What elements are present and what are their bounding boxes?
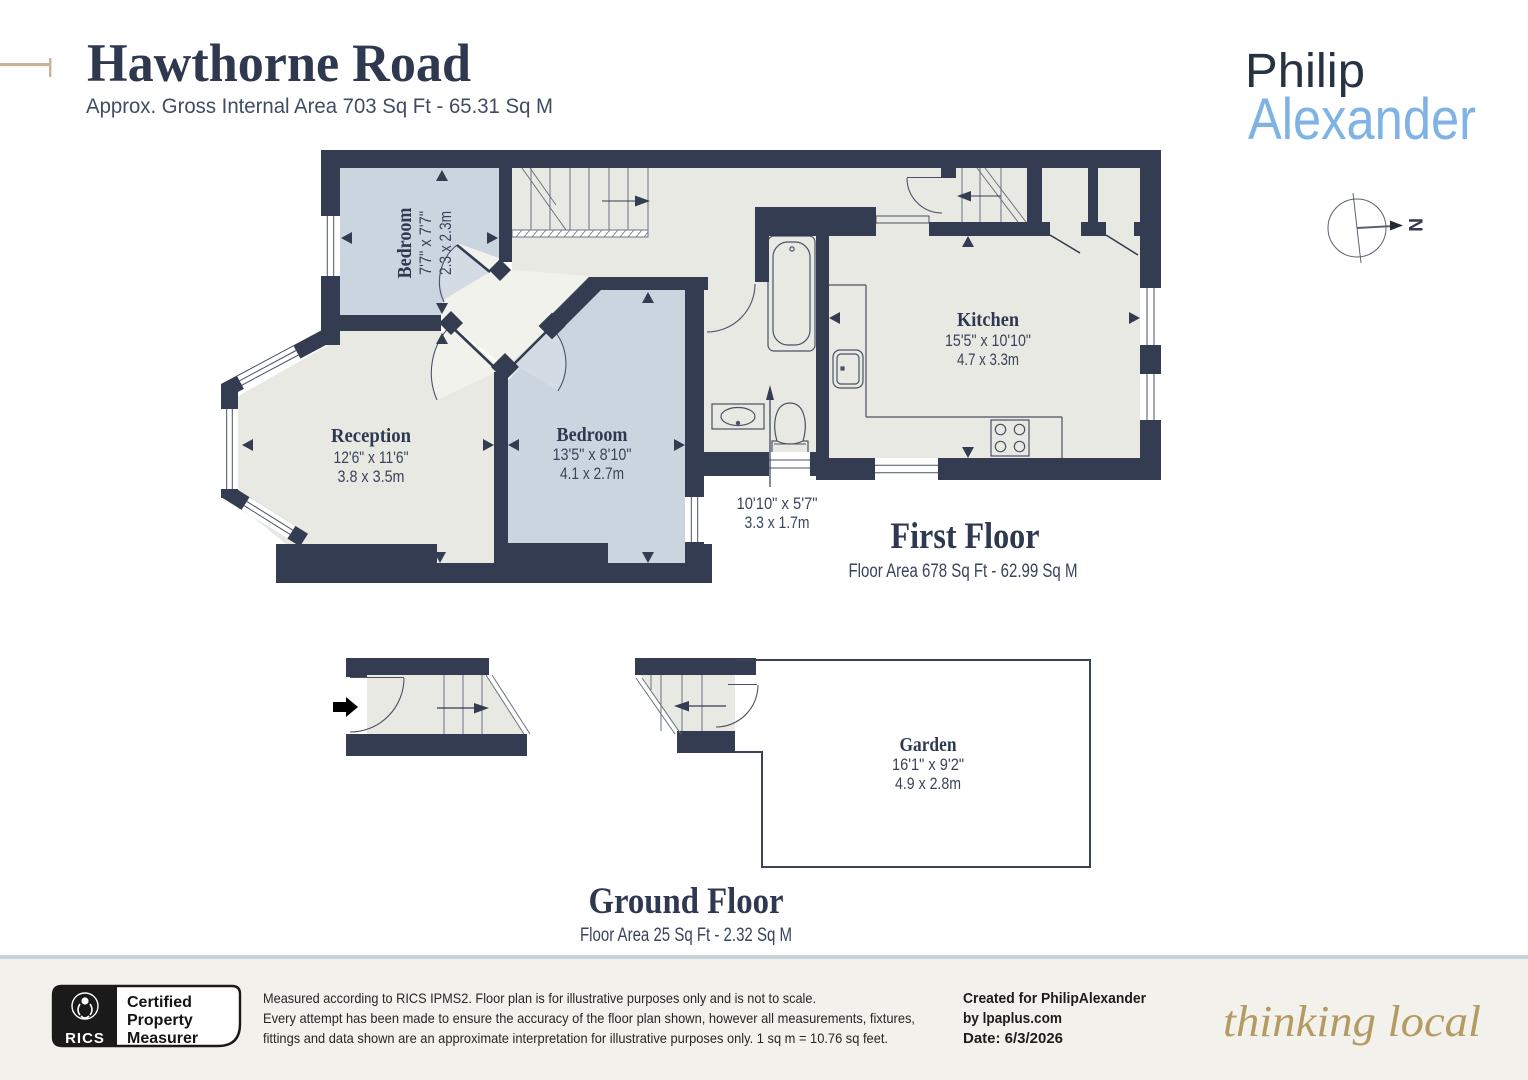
svg-text:4.7 x 3.3m: 4.7 x 3.3m bbox=[957, 350, 1019, 369]
svg-text:RICS: RICS bbox=[65, 1030, 105, 1047]
svg-text:Bedroom: Bedroom bbox=[394, 207, 416, 278]
svg-text:First Floor: First Floor bbox=[891, 516, 1040, 557]
svg-text:Measurer: Measurer bbox=[127, 1030, 198, 1047]
svg-text:3.8 x 3.5m: 3.8 x 3.5m bbox=[338, 467, 405, 486]
svg-text:4.1 x 2.7m: 4.1 x 2.7m bbox=[560, 464, 624, 483]
svg-text:Created for PhilipAlexander: Created for PhilipAlexander bbox=[963, 991, 1146, 1007]
svg-text:4.9 x 2.8m: 4.9 x 2.8m bbox=[895, 774, 961, 793]
svg-text:7'7" x 7'7": 7'7" x 7'7" bbox=[416, 211, 435, 275]
svg-text:N: N bbox=[1404, 218, 1425, 232]
svg-text:15'5" x 10'10": 15'5" x 10'10" bbox=[945, 331, 1031, 350]
svg-text:Floor Area 25 Sq Ft - 2.32 Sq: Floor Area 25 Sq Ft - 2.32 Sq M bbox=[580, 925, 792, 946]
svg-text:10'10" x 5'7": 10'10" x 5'7" bbox=[737, 494, 818, 513]
svg-text:Hawthorne Road: Hawthorne Road bbox=[87, 33, 471, 93]
svg-text:Property: Property bbox=[127, 1012, 193, 1029]
svg-text:Measured according to RICS IPM: Measured according to RICS IPMS2. Floor … bbox=[263, 991, 816, 1006]
svg-text:by lpaplus.com: by lpaplus.com bbox=[963, 1011, 1062, 1027]
svg-text:Bedroom: Bedroom bbox=[557, 424, 628, 446]
svg-text:Approx. Gross Internal Area 70: Approx. Gross Internal Area 703 Sq Ft - … bbox=[86, 95, 553, 118]
svg-text:Certified: Certified bbox=[127, 994, 192, 1011]
svg-text:Kitchen: Kitchen bbox=[957, 309, 1019, 331]
svg-text:Alexander: Alexander bbox=[1248, 87, 1476, 152]
svg-text:2.3 x 2.3m: 2.3 x 2.3m bbox=[436, 211, 455, 275]
svg-text:Date: 6/3/2026: Date: 6/3/2026 bbox=[963, 1031, 1063, 1047]
svg-text:16'1" x 9'2": 16'1" x 9'2" bbox=[892, 755, 964, 774]
svg-text:13'5" x 8'10": 13'5" x 8'10" bbox=[553, 445, 632, 464]
svg-text:3.3 x 1.7m: 3.3 x 1.7m bbox=[745, 513, 810, 532]
svg-text:thinking local: thinking local bbox=[1223, 997, 1481, 1046]
svg-text:Ground Floor: Ground Floor bbox=[589, 881, 784, 922]
svg-text:Garden: Garden bbox=[900, 734, 957, 756]
svg-text:12'6" x 11'6": 12'6" x 11'6" bbox=[334, 448, 409, 467]
svg-text:fittings and data shown are an: fittings and data shown are an approxima… bbox=[263, 1031, 888, 1046]
svg-text:Every attempt has been made to: Every attempt has been made to ensure th… bbox=[263, 1011, 915, 1026]
svg-text:Reception: Reception bbox=[331, 425, 411, 447]
svg-text:Floor Area 678 Sq Ft - 62.99 S: Floor Area 678 Sq Ft - 62.99 Sq M bbox=[849, 561, 1078, 582]
